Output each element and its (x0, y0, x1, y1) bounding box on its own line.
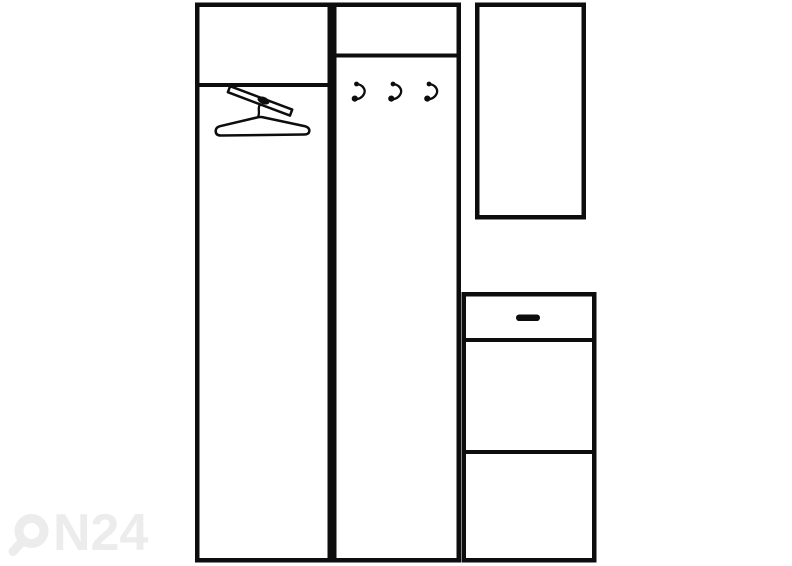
coat-hook-panel (334, 5, 459, 561)
watermark-text: N24 (53, 504, 148, 562)
shoe-cabinet (464, 294, 595, 560)
watermark: N24 (13, 504, 148, 562)
mirror-outline (477, 5, 584, 218)
coat-panel-outline (334, 5, 459, 561)
wardrobe-cabinet (197, 5, 330, 561)
mirror-panel (477, 5, 584, 218)
hanger-hook-stem (258, 105, 260, 118)
wardrobe-outline (197, 5, 330, 561)
product-illustration-canvas: N24 (0, 0, 792, 566)
magnifier-o-icon (13, 519, 44, 552)
drawer-handle (516, 315, 540, 322)
shoe-cabinet-outline (464, 294, 595, 560)
furniture-line-drawing: N24 (0, 0, 792, 566)
